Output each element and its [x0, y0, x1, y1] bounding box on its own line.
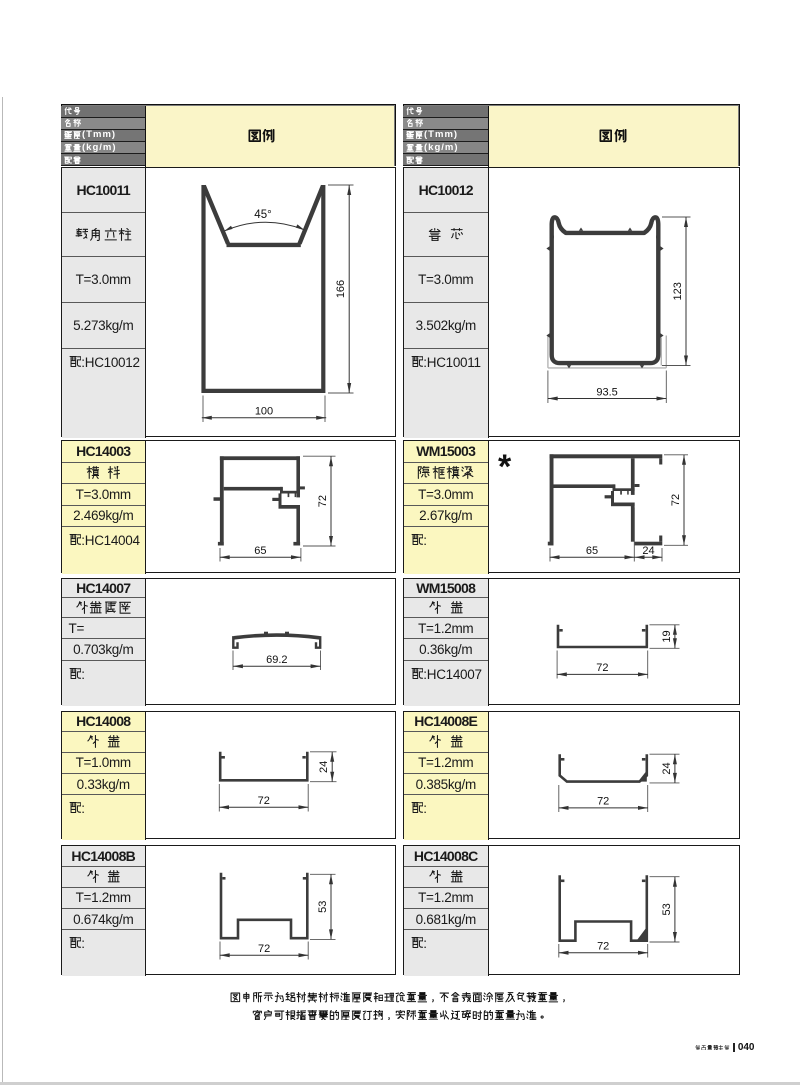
- svg-text:19: 19: [661, 630, 673, 642]
- svg-text:53: 53: [661, 903, 673, 915]
- svg-text:72: 72: [597, 796, 609, 808]
- svg-text:166: 166: [335, 279, 347, 297]
- svg-text:72: 72: [258, 795, 270, 807]
- svg-text:72: 72: [597, 940, 609, 952]
- svg-text:65: 65: [254, 545, 266, 557]
- svg-text:100: 100: [255, 405, 273, 417]
- svg-text:72: 72: [670, 494, 682, 506]
- svg-text:53: 53: [317, 900, 329, 912]
- svg-text:72: 72: [258, 943, 270, 955]
- svg-text:65: 65: [586, 545, 598, 557]
- svg-text:24: 24: [661, 762, 673, 774]
- svg-text:123: 123: [672, 282, 684, 300]
- svg-text:45°: 45°: [254, 209, 271, 221]
- svg-text:24: 24: [318, 761, 330, 773]
- svg-text:69.2: 69.2: [266, 654, 287, 666]
- svg-text:24: 24: [642, 545, 654, 557]
- svg-text:72: 72: [317, 495, 329, 507]
- svg-text:72: 72: [596, 662, 608, 674]
- svg-text:93.5: 93.5: [596, 386, 617, 398]
